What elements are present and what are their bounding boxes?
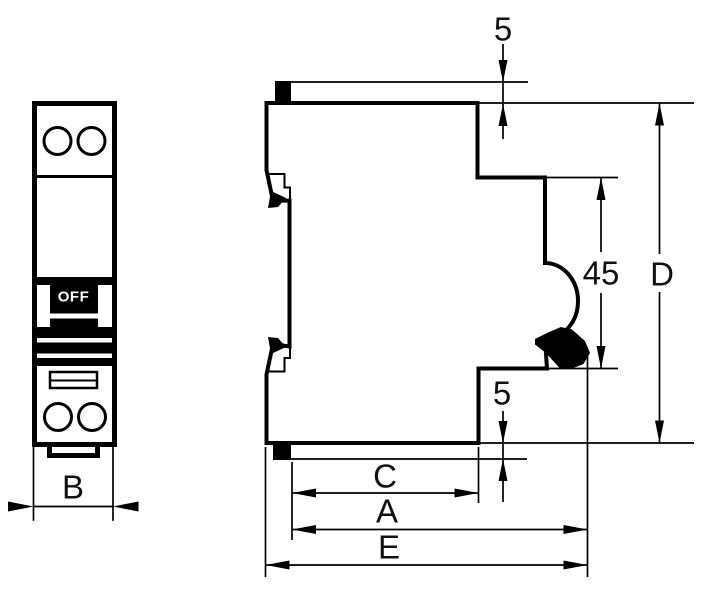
dim-e-arrow-left <box>266 561 290 570</box>
drawing-svg <box>0 0 714 614</box>
dim-label-e: E <box>378 531 400 564</box>
side-view <box>267 81 591 460</box>
toggle-slit <box>50 314 98 319</box>
dim-e-arrow-right <box>564 561 588 570</box>
bottom-mounting-tab <box>50 447 98 456</box>
stripe-gap-1 <box>37 338 112 343</box>
stripe-band <box>37 327 112 366</box>
bottom-terminal-screw-right <box>79 404 106 431</box>
front-housing-outline <box>35 104 115 445</box>
bottom-clip-tab <box>273 443 291 460</box>
dim-c-arrow-left <box>292 489 316 498</box>
top-5-arrow-up <box>499 104 508 126</box>
dim-d-arrow-up <box>655 103 664 126</box>
dim-c-arrow-right <box>455 489 479 498</box>
stripe-gap-2 <box>37 354 112 359</box>
bottom-5-arrow-up <box>499 459 508 481</box>
dim-label-d: D <box>650 258 674 291</box>
dim-label-c: C <box>373 460 397 493</box>
top-terminal-screw-right <box>78 128 105 155</box>
top-clip-tab <box>275 81 291 103</box>
dim-label-b: B <box>62 471 84 504</box>
top-terminal-screw-left <box>44 128 71 155</box>
dim-a-arrow-left <box>292 525 316 534</box>
top-5-arrow-down <box>499 60 508 82</box>
mcb-dimension-drawing: OFF B 5 5 45 D C A E <box>0 0 714 614</box>
dim-label-top-5: 5 <box>494 13 512 46</box>
bottom-terminal-screw-left <box>45 404 72 431</box>
dim-a-arrow-right <box>564 525 588 534</box>
dim-label-a: A <box>376 495 398 528</box>
dim-label-45: 45 <box>583 257 620 290</box>
dim-45-arrow-up <box>597 178 606 201</box>
front-view <box>8 104 139 521</box>
dim-d-arrow-down <box>655 421 664 444</box>
b-arrow-right <box>113 502 139 512</box>
toggle-off-label: OFF <box>58 290 90 305</box>
side-profile-outline <box>267 103 579 443</box>
dim-label-bottom-5: 5 <box>493 377 511 410</box>
b-arrow-left <box>8 502 34 512</box>
dim-45-arrow-down <box>597 346 606 369</box>
bottom-5-arrow-down <box>499 421 508 443</box>
